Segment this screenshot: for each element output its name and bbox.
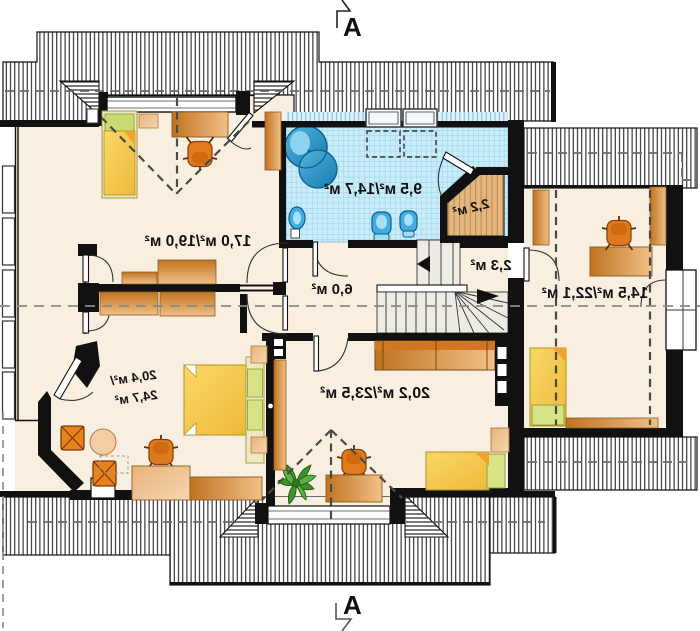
svg-text:17,0 м²/19,0 м²: 17,0 м²/19,0 м² xyxy=(145,233,252,250)
svg-text:20,2 м²/23,5 м²: 20,2 м²/23,5 м² xyxy=(320,385,430,402)
svg-text:2,3 м²: 2,3 м² xyxy=(470,257,511,274)
svg-text:14,5 м²/22,1 м²: 14,5 м²/22,1 м² xyxy=(542,285,649,302)
svg-text:A: A xyxy=(343,590,362,620)
svg-text:A: A xyxy=(343,12,362,42)
svg-text:9,5 м²/14,7 м²: 9,5 м²/14,7 м² xyxy=(324,181,422,198)
svg-text:6,0 м²: 6,0 м² xyxy=(311,281,352,298)
